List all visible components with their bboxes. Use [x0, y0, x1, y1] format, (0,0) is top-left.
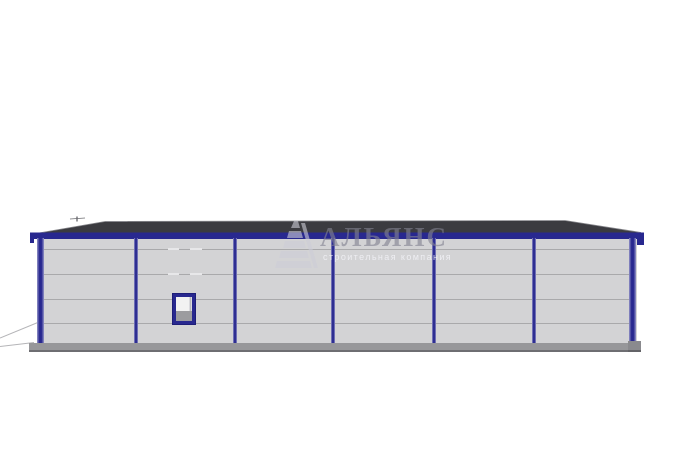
- roof-fascia: [30, 233, 644, 240]
- panel-seam-line: [40, 249, 635, 250]
- seam-highlight-dash: [168, 273, 179, 275]
- render-canvas: АЛЬЯНС строительная компания: [0, 0, 700, 474]
- column: [432, 238, 436, 344]
- seam-highlight-dash: [190, 248, 202, 250]
- corner-column-right: [629, 238, 636, 344]
- roof-vent-base: [70, 218, 85, 219]
- column: [331, 238, 335, 344]
- seam-highlight-dash: [168, 248, 179, 250]
- corner-column-left: [37, 238, 44, 344]
- column: [134, 238, 138, 344]
- seam-highlight-dash: [190, 273, 202, 275]
- column: [532, 238, 536, 344]
- ground-line-upper: [0, 322, 39, 338]
- fascia-right-cap: [637, 233, 644, 246]
- foundation-endcap-right: [628, 341, 641, 352]
- panel-seam-line: [40, 323, 635, 324]
- panel-seam-line: [40, 274, 635, 275]
- window: [172, 293, 196, 325]
- fascia-left-cap: [30, 233, 34, 244]
- foundation-strip: [29, 343, 641, 352]
- roof-and-ground-svg: [0, 0, 700, 474]
- window-sill: [176, 311, 192, 321]
- column: [233, 238, 237, 344]
- window-pane-divider: [190, 297, 191, 311]
- panel-seam-line: [40, 299, 635, 300]
